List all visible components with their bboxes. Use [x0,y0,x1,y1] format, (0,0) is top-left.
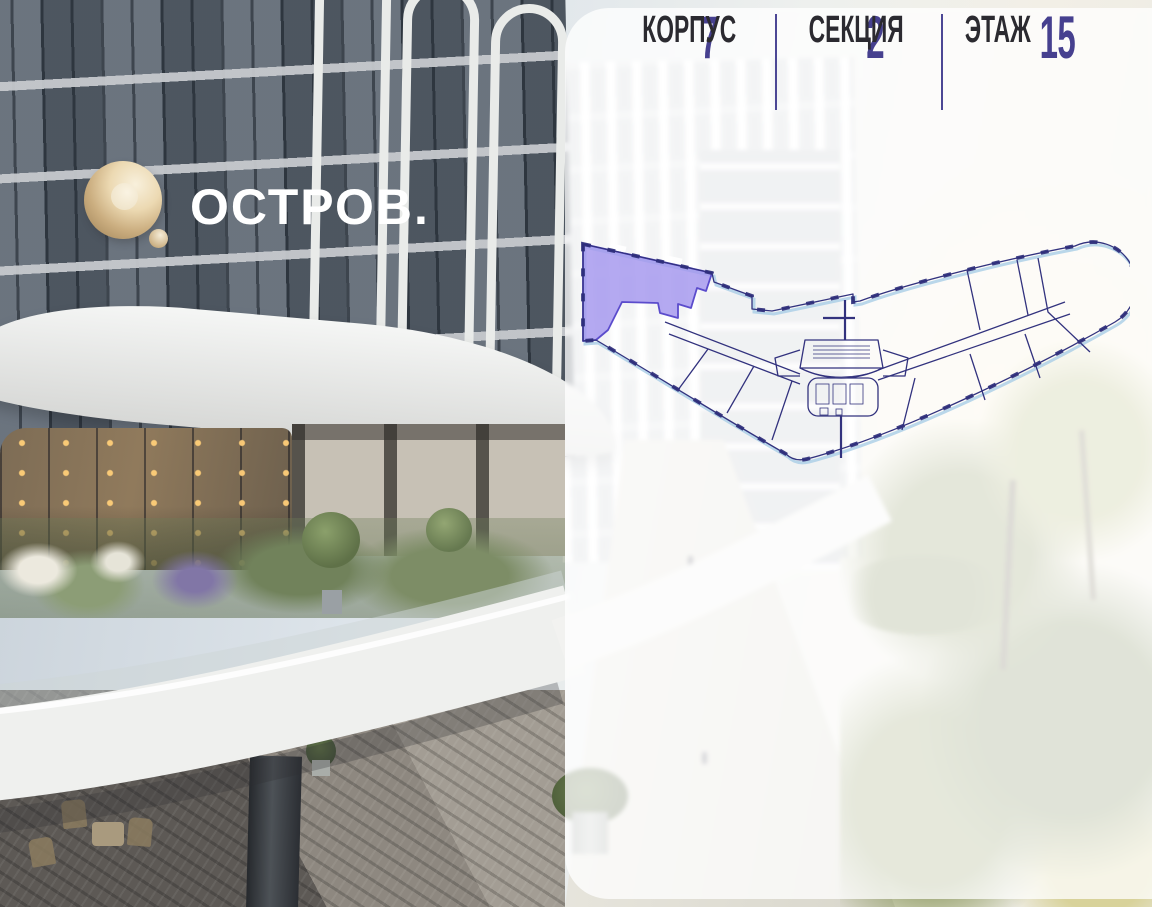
ring-logo-icon [84,161,162,239]
unit-location-stats: 7 КОРПУС 2 СЕКЦИЯ 15 ЭТАЖ [565,8,1152,110]
brand-logo[interactable]: ОСТРОВ. [84,160,504,260]
ring-logo-hole [111,183,138,210]
section-label: СЕКЦИЯ [808,14,903,46]
floor-label: ЭТАЖ [964,14,1030,46]
apartment-selector-screen: ОСТРОВ. [0,0,1152,907]
brand-name: ОСТРОВ. [190,178,430,236]
stats-divider [775,14,777,110]
floor-number: 15 [1039,8,1075,68]
building-label: КОРПУС [642,14,736,46]
stats-divider [941,14,943,110]
floor-plan [570,230,1130,470]
info-panel: 7 КОРПУС 2 СЕКЦИЯ 15 ЭТАЖ [565,8,1152,899]
ring-logo-dot-icon [149,229,168,248]
